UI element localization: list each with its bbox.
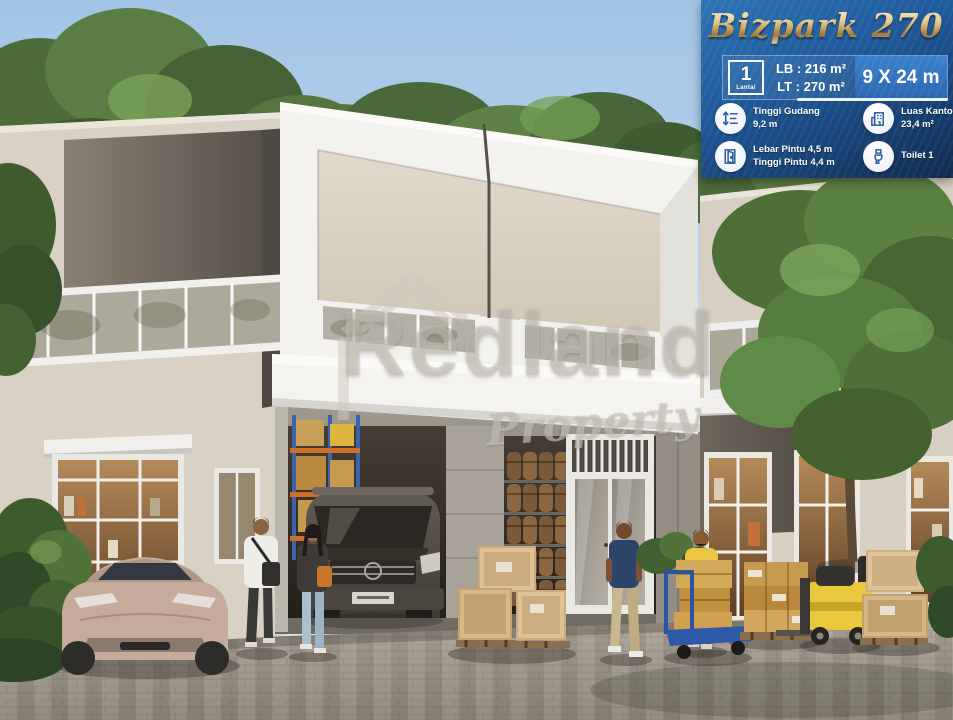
office-building-icon (863, 103, 894, 134)
toilet-icon (863, 141, 894, 172)
feature-luas-kantor: Luas Kantor23,4 m² (857, 103, 953, 134)
unit-dimensions: 9 X 24 m (855, 56, 947, 99)
floors-value: 1 (741, 65, 752, 84)
spec-bar: 1 Lantai LB : 216 m² LT : 270 m² 9 X 24 … (722, 55, 948, 100)
door-icon (715, 141, 746, 172)
feature-list: Tinggi Gudang9,2 m Luas Kantor23,4 m² Le… (709, 103, 951, 172)
feature-label: Lebar Pintu 4,5 m (753, 144, 835, 156)
info-panel: Bizpark 270 1 Lantai LB : 216 m² LT : 27… (701, 0, 953, 178)
floors-box: 1 Lantai (728, 60, 764, 95)
area-specs: LB : 216 m² LT : 270 m² (767, 56, 855, 99)
floors-label: Lantai (736, 85, 755, 91)
feature-tinggi-gudang: Tinggi Gudang9,2 m (709, 103, 857, 134)
feature-label: Luas Kantor (901, 106, 953, 118)
feature-pintu: Lebar Pintu 4,5 mTinggi Pintu 4,4 m (709, 141, 857, 172)
feature-value: Tinggi Pintu 4,4 m (753, 157, 835, 169)
crates-right (860, 536, 953, 645)
feature-value: 9,2 m (753, 119, 820, 131)
feature-toilet: Toilet 1 (857, 141, 953, 172)
feature-label: Tinggi Gudang (753, 106, 820, 118)
feature-label: Toilet 1 (901, 150, 934, 162)
feature-value: 23,4 m² (901, 119, 953, 131)
project-title: Bizpark 270 (701, 6, 951, 45)
bizpark-flyer: Redland Property Bizpark 270 1 Lantai LB… (0, 0, 953, 720)
building-area: LB : 216 m² (776, 60, 846, 78)
height-measure-icon (715, 103, 746, 134)
glass-entry-door (566, 434, 654, 614)
land-area: LT : 270 m² (777, 78, 845, 96)
